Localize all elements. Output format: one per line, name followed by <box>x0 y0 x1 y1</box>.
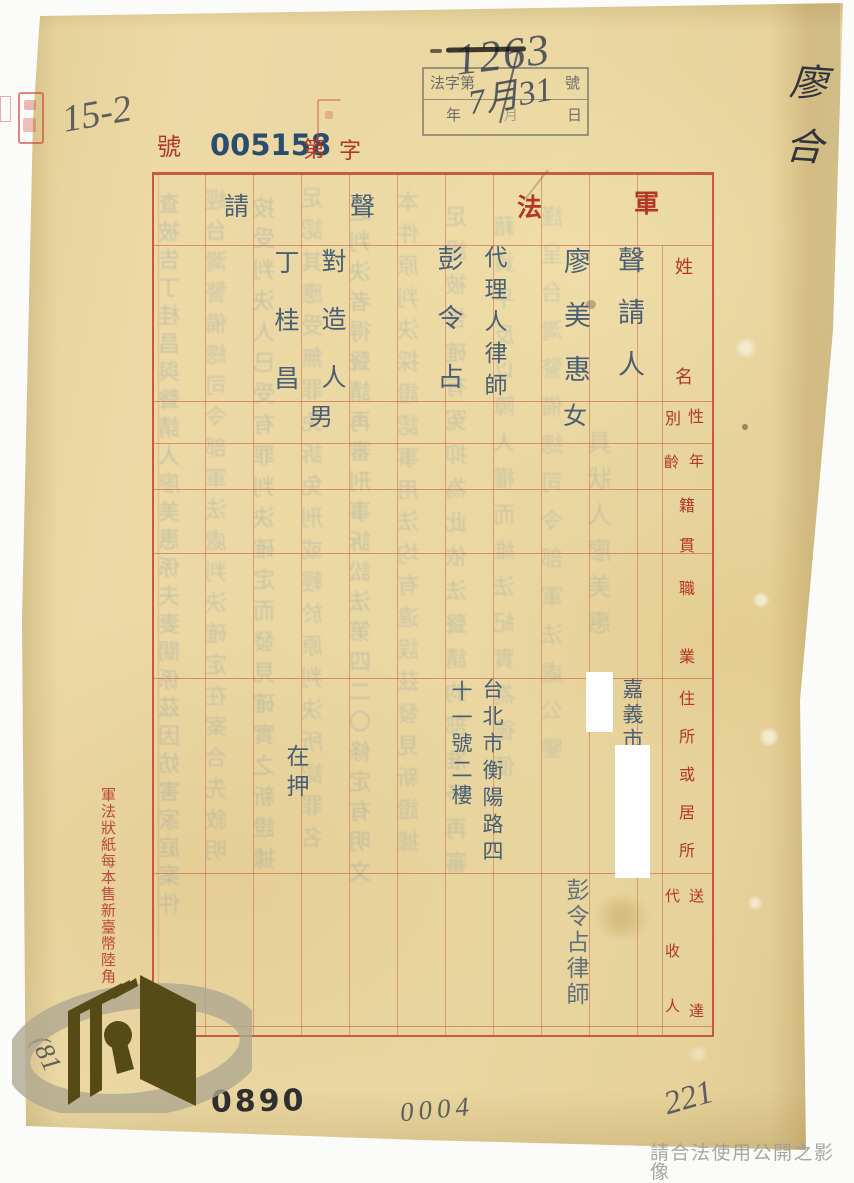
opponent-address: 在押 <box>284 744 307 804</box>
ink-smudge-2 <box>430 49 442 53</box>
paper-stain <box>735 338 757 358</box>
grid-line-h <box>154 443 712 444</box>
header-sex-l: 別 <box>665 412 681 428</box>
grid-line-v <box>541 175 542 1035</box>
grid-line-v <box>158 175 159 1035</box>
archives-logo <box>12 963 252 1113</box>
grid-line-v <box>205 175 206 1035</box>
red-seal-top-left <box>18 92 44 144</box>
stamp-box-day: 日 <box>567 109 582 124</box>
grid-line-v <box>253 175 254 1035</box>
header-agent-l: 代收人 <box>663 888 678 1053</box>
attorney-address-col1: 台北市衡陽路四 <box>481 678 502 867</box>
title-char-qing: 請 <box>224 195 249 220</box>
red-seal-edge-fragment <box>0 96 11 122</box>
usage-watermark: 請合法使用公開之影像 <box>650 1144 854 1182</box>
petitioner-address: 嘉義市 <box>621 678 642 753</box>
pen-note-top-right: 廖合 <box>778 61 825 191</box>
serial-zi: 字 <box>339 140 361 162</box>
petitioner-role: 聲請人 <box>615 246 642 402</box>
header-age-r: 年 <box>689 455 704 470</box>
serial-hao: 號 <box>157 136 181 160</box>
opponent-sex: 男 <box>309 406 333 430</box>
paper-stain <box>742 424 748 430</box>
header-name: 姓名 <box>674 257 692 477</box>
page-content: 具狀人廖美惠謹呈台灣警備總司令部軍法處公鑒藉資平反以障人權而維法紀實為德便足證被… <box>0 0 854 1169</box>
redaction-box-2 <box>615 745 650 878</box>
attorney-role: 代理人律師 <box>482 245 505 405</box>
serial-di: 第 <box>303 139 325 161</box>
paper-stain <box>758 728 780 746</box>
grid-line-h <box>154 489 712 490</box>
title-char-sheng: 聲 <box>350 195 375 220</box>
grid-line-v <box>301 175 302 1035</box>
stamp-box-year: 年 <box>446 109 461 124</box>
opponent-name: 丁桂昌 <box>272 249 297 423</box>
logo-ring <box>12 983 252 1113</box>
header-address: 住所或居所 <box>676 690 692 880</box>
grid-line-v <box>349 175 350 1035</box>
stamp-box-hao: 號 <box>565 77 580 92</box>
pencil-number-bottom: 0004 <box>399 1093 475 1126</box>
title-char-jun: 軍 <box>634 192 659 217</box>
pencil-scribble-bottom-right: 221 <box>660 1076 717 1121</box>
header-sex-r: 性 <box>688 410 704 426</box>
red-bracket-stamp <box>317 99 341 141</box>
paper-stain <box>752 592 770 608</box>
attorney-address-col2: 十一號二樓 <box>450 680 471 810</box>
petitioner-sex: 女 <box>563 405 587 429</box>
header-origin: 籍貫 <box>676 497 692 577</box>
paper-stain <box>747 896 763 910</box>
scanned-document-page: 具狀人廖美惠謹呈台灣警備總司令部軍法處公鑒藉資平反以障人權而維法紀實為德便足證被… <box>0 0 854 1169</box>
attorney-name: 彭令占 <box>435 245 461 422</box>
redaction-box-1 <box>586 672 613 732</box>
grid-line-h <box>154 553 712 554</box>
title-char-fa: 法 <box>517 196 542 221</box>
petitioner-service-agent: 彭令占律師 <box>564 878 587 1008</box>
opponent-role: 對造人 <box>319 248 344 422</box>
grid-line-v <box>397 175 398 1035</box>
petitioner-name: 廖美惠 <box>561 247 588 409</box>
form-price-note: 軍法狀紙每本售新臺幣陸角 <box>99 787 114 985</box>
header-age-l: 齡 <box>664 456 679 471</box>
pencil-note-top-left: 15-2 <box>59 89 134 139</box>
